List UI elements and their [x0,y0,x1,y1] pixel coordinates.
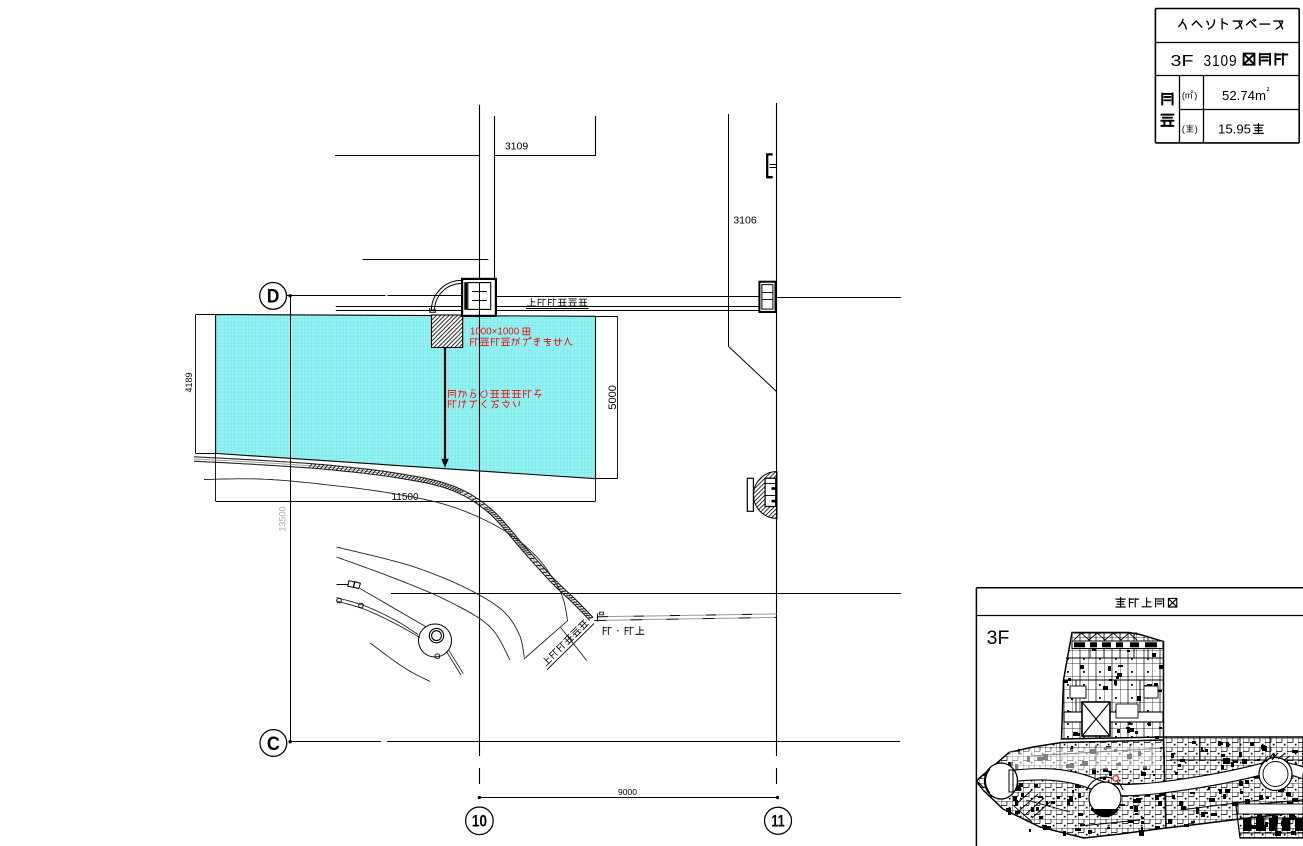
svg-text:C: C [267,734,280,755]
svg-text:²: ² [1267,86,1270,96]
svg-text:3109: 3109 [505,141,529,153]
svg-text:(: ( [1182,124,1185,134]
svg-text:): ) [1194,91,1197,101]
svg-text:52.74m: 52.74m [1222,88,1266,103]
svg-text:3F: 3F [1171,53,1194,70]
svg-text:10: 10 [472,813,487,831]
svg-text:13500: 13500 [278,506,288,531]
svg-text:5000: 5000 [607,385,619,409]
svg-text:1000×1000: 1000×1000 [470,327,520,338]
svg-text:D: D [267,287,280,308]
svg-text:15.95: 15.95 [1218,122,1251,137]
svg-text:11: 11 [771,813,785,831]
svg-text:): ) [1195,124,1198,134]
svg-text:4189: 4189 [184,372,194,392]
svg-text:3F: 3F [987,627,1010,649]
svg-text:9000: 9000 [618,787,637,797]
svg-text:3109: 3109 [1204,53,1238,70]
svg-text:3106: 3106 [733,215,757,227]
